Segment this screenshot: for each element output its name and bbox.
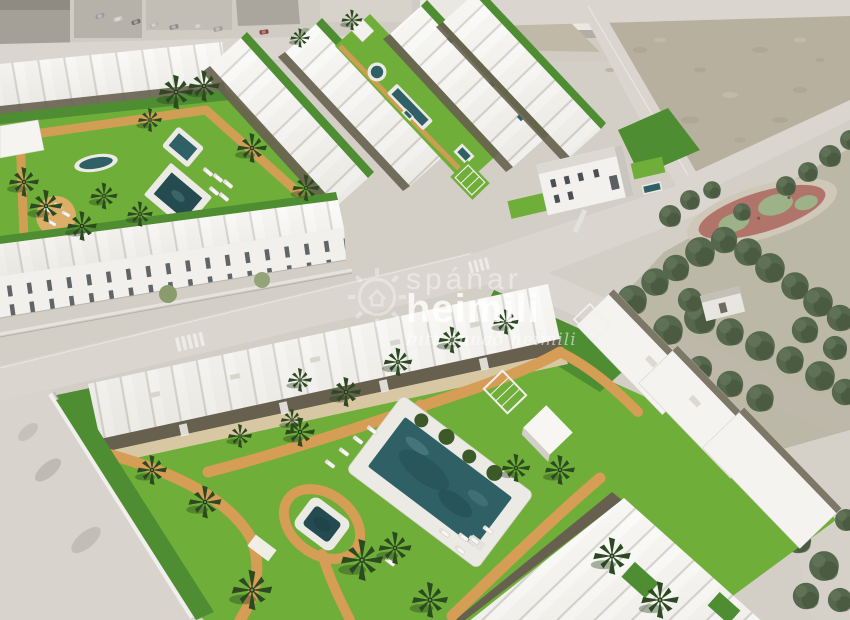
scene-svg [0, 0, 850, 620]
aerial-render: spánar heimili Þitt annað heimili [0, 0, 850, 620]
street-tree [254, 272, 270, 288]
street-tree [159, 285, 177, 303]
